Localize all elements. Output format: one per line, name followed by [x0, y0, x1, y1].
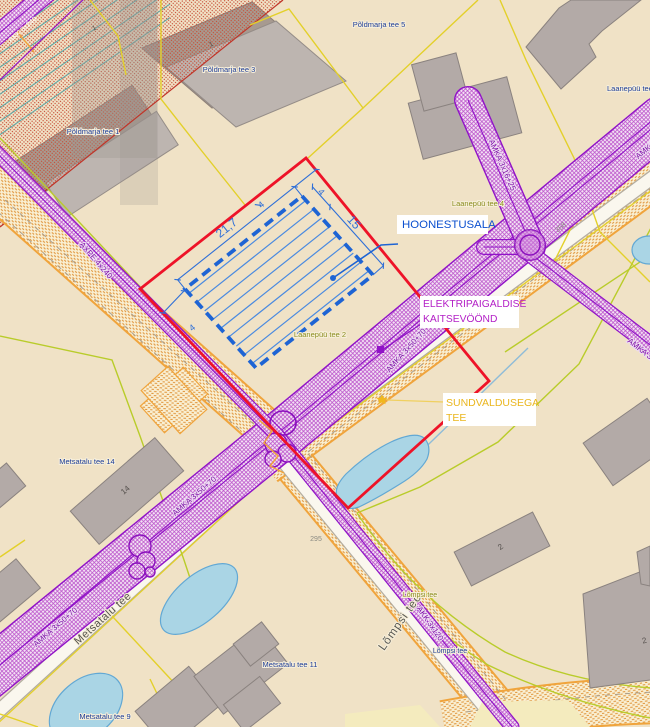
svg-text:ELEKTRIPAIGALDISE: ELEKTRIPAIGALDISE [423, 299, 527, 310]
svg-text:Lõmpsi tee: Lõmpsi tee [433, 648, 467, 655]
svg-text:Põldmarja tee 5: Põldmarja tee 5 [353, 20, 406, 29]
svg-text:295: 295 [310, 536, 322, 543]
svg-text:Põldmarja tee 1: Põldmarja tee 1 [67, 127, 120, 136]
svg-text:Laanepüü tee: Laanepüü tee [607, 84, 650, 93]
svg-text:KAITSEVÖÖND: KAITSEVÖÖND [423, 313, 497, 325]
svg-text:Metsatalu tee 9: Metsatalu tee 9 [79, 712, 130, 721]
svg-text:Metsatalu tee 11: Metsatalu tee 11 [263, 660, 318, 669]
svg-text:Laanepüü tee 2: Laanepüü tee 2 [294, 330, 346, 339]
svg-text:SUNDVALDUSEGA: SUNDVALDUSEGA [446, 397, 539, 409]
svg-text:Põldmarja tee 3: Põldmarja tee 3 [203, 65, 256, 74]
svg-text:Metsatalu tee 14: Metsatalu tee 14 [59, 457, 114, 466]
svg-text:HOONESTUSALA: HOONESTUSALA [402, 219, 496, 231]
svg-text:Laanepüü tee 4: Laanepüü tee 4 [452, 199, 504, 208]
svg-text:TEE: TEE [446, 412, 466, 424]
svg-text:Lõmpsi tee: Lõmpsi tee [403, 592, 437, 599]
